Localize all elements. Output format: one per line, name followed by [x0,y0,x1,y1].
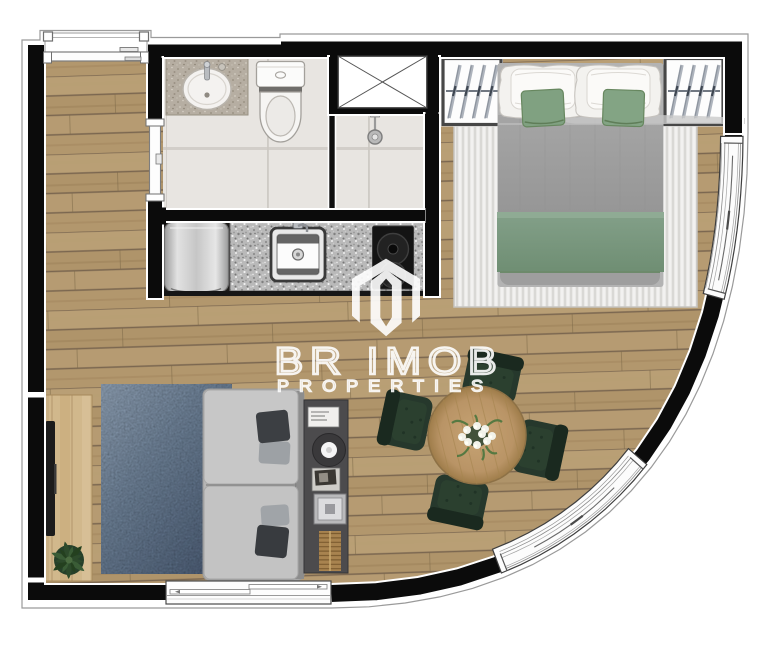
svg-text:PROPERTIES: PROPERTIES [277,378,493,396]
